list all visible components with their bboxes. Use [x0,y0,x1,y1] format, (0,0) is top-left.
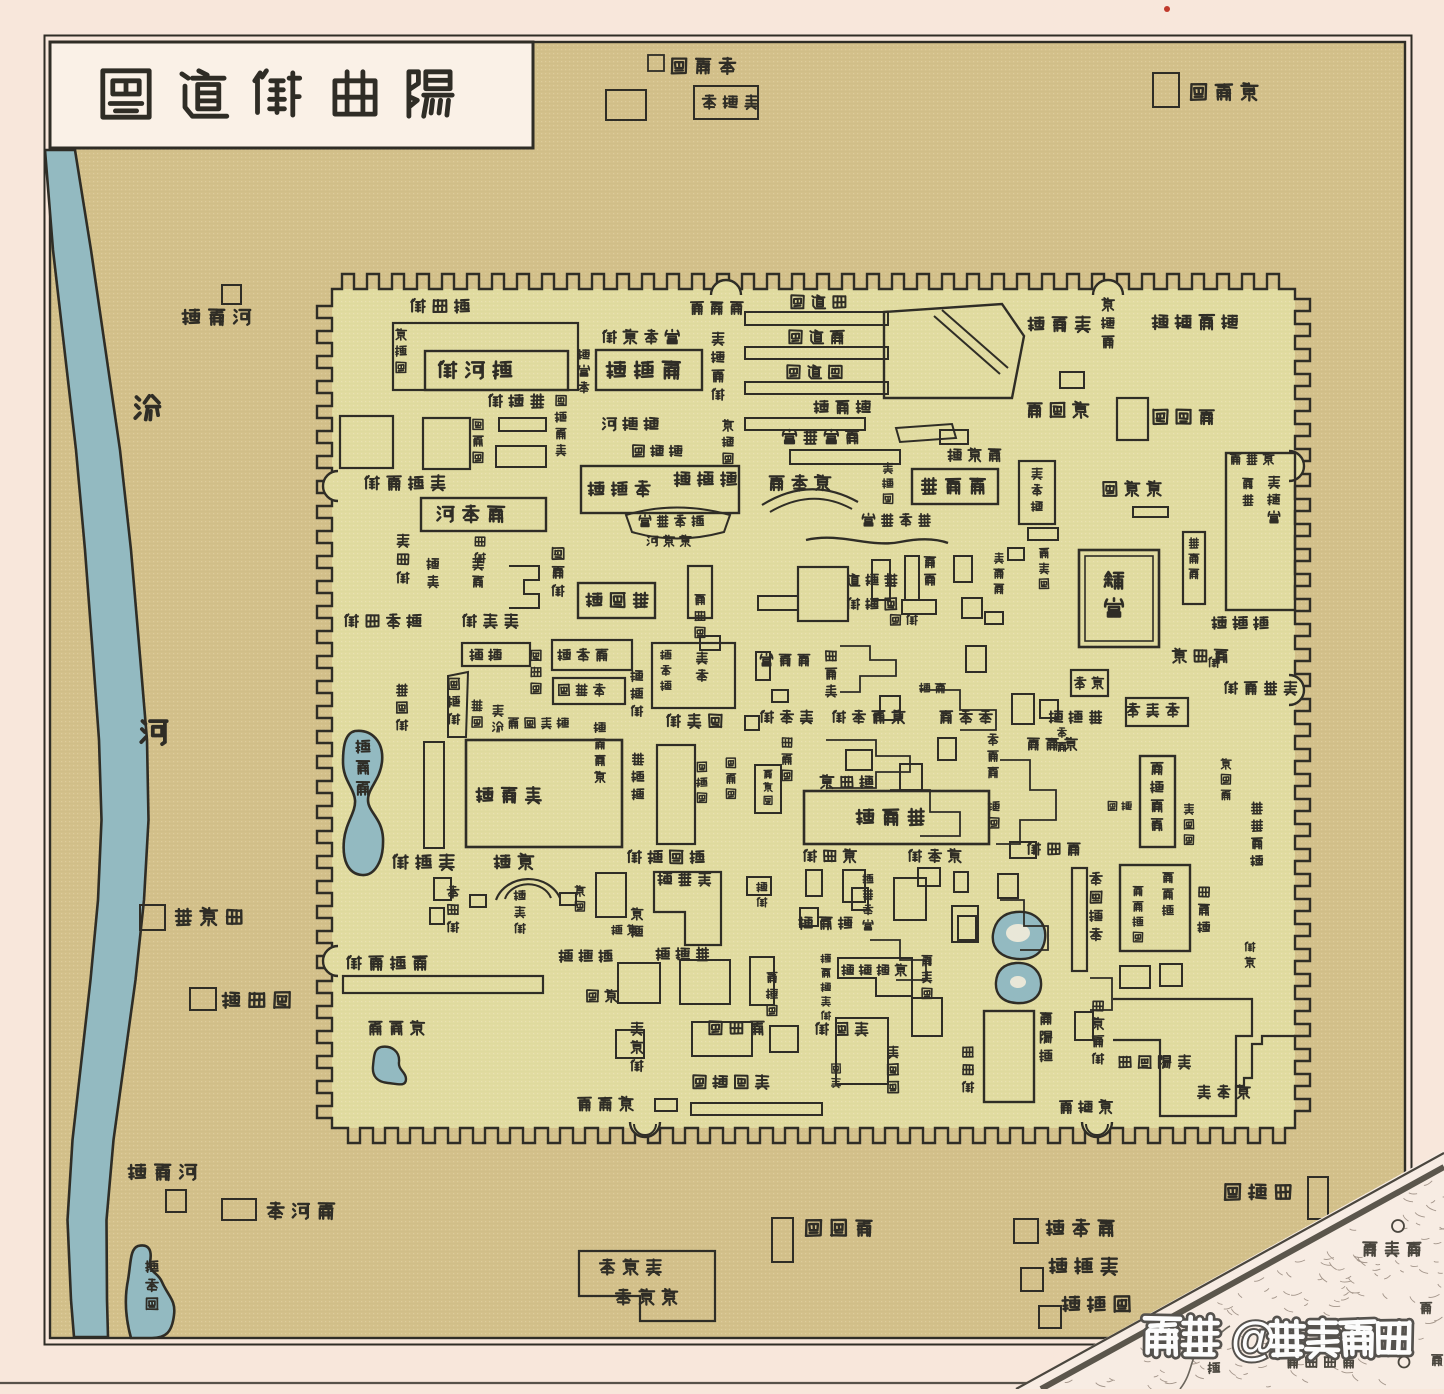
svg-text:@: @ [1231,1312,1276,1364]
